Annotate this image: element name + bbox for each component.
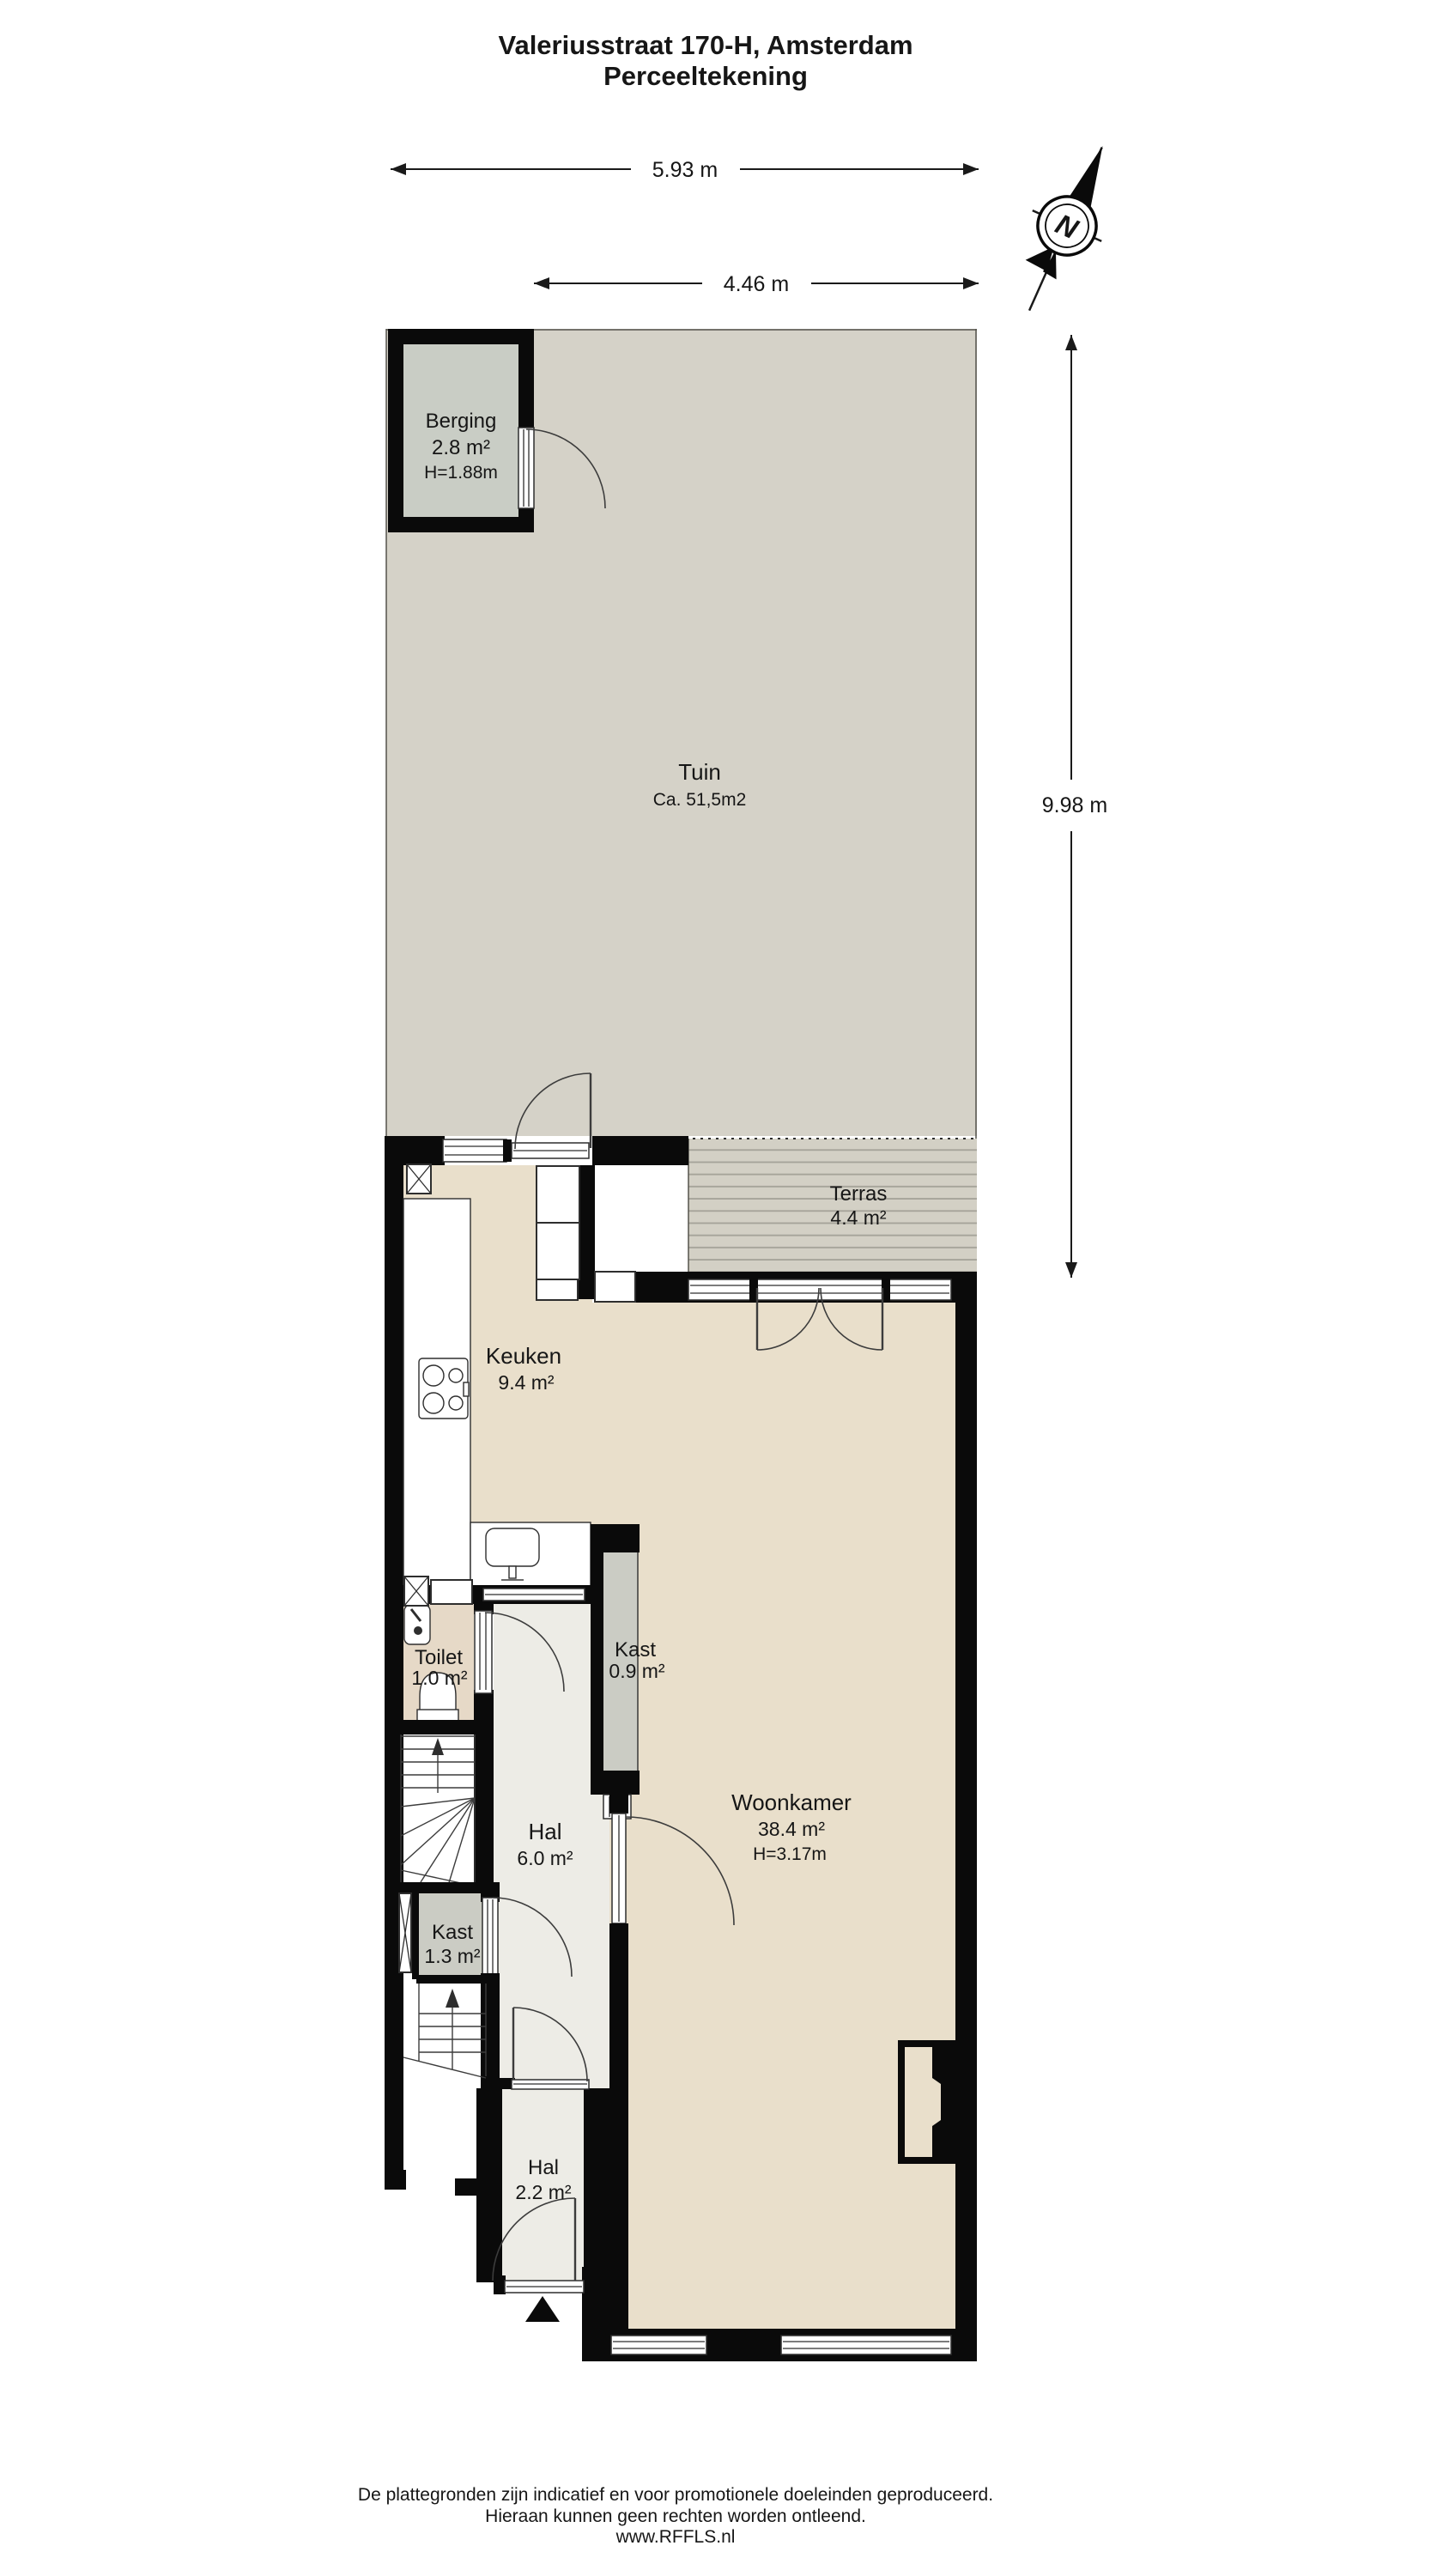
keuken-area: 9.4 m² <box>498 1371 555 1394</box>
terras-label: Terras <box>830 1182 888 1206</box>
page-title: Valeriusstraat 170-H, Amsterdam Perceelt… <box>498 30 912 91</box>
vent-shaft-icon <box>404 1577 428 1606</box>
berging-area: 2.8 m² <box>432 436 490 459</box>
title-line1: Valeriusstraat 170-H, Amsterdam <box>498 30 912 60</box>
terras-area: 4.4 m² <box>830 1206 887 1229</box>
compass-icon: N <box>995 131 1137 326</box>
keuken-label: Keuken <box>486 1343 561 1369</box>
dimension-label: 5.93 m <box>652 158 718 182</box>
toilet-area: 1.0 m² <box>411 1667 468 1689</box>
woonkamer-label: Woonkamer <box>731 1789 852 1815</box>
hal-label: Hal <box>528 1819 561 1844</box>
dimension-total-width: 5.93 m <box>391 158 979 182</box>
berging-height: H=1.88m <box>424 463 498 483</box>
dimension-garden-depth: 9.98 m <box>1042 335 1107 1278</box>
cabinet-icon <box>595 1272 635 1302</box>
hal-entree-label: Hal <box>528 2156 559 2179</box>
stairs-icon <box>401 1735 475 1886</box>
cabinet-column <box>537 1165 635 1302</box>
footer-line3: www.RFFLS.nl <box>615 2527 736 2547</box>
toilet-label: Toilet <box>415 1646 463 1669</box>
hal-area: 6.0 m² <box>517 1847 573 1869</box>
hal-entree-area: 2.2 m² <box>515 2181 572 2203</box>
footer-line2: Hieraan kunnen geen rechten worden ontle… <box>485 2506 866 2526</box>
floorplan-canvas: Valeriusstraat 170-H, Amsterdam Perceelt… <box>0 0 1449 2576</box>
vent-shaft-icon <box>399 1893 411 1972</box>
footer-line1: De plattegronden zijn indicatief en voor… <box>358 2485 993 2505</box>
kast-klein-area: 0.9 m² <box>609 1660 665 1682</box>
right-outer-wall <box>955 1272 977 2361</box>
kast-area: 1.3 m² <box>424 1945 481 1967</box>
cabinet-icon <box>537 1279 578 1300</box>
title-line2: Perceeltekening <box>603 61 808 91</box>
woonkamer-floor <box>592 1303 955 2331</box>
berging-label: Berging <box>426 410 497 433</box>
cabinet-icon <box>537 1166 579 1223</box>
bottom-wall <box>584 2329 973 2361</box>
entrance-arrow-icon <box>525 2296 560 2322</box>
cabinet-icon <box>537 1223 579 1279</box>
tuin-area: Ca. 51,5m2 <box>653 790 747 810</box>
woonkamer-area: 38.4 m² <box>758 1818 825 1840</box>
woonkamer-height: H=3.17m <box>753 1844 827 1864</box>
stairs-icon <box>403 1984 486 2078</box>
hand-sink-icon <box>404 1605 430 1644</box>
tuin-label: Tuin <box>678 759 721 785</box>
kast-label: Kast <box>432 1921 473 1944</box>
dimension-label: 4.46 m <box>724 272 789 296</box>
dimension-garden-width: 4.46 m <box>534 272 979 296</box>
kast-klein-label: Kast <box>615 1638 656 1662</box>
stairs-up-arrow-icon <box>432 1738 444 1755</box>
vent-shaft-icon <box>407 1164 431 1194</box>
dimension-label: 9.98 m <box>1042 793 1107 817</box>
stove-icon <box>419 1358 469 1419</box>
stairs-up-arrow-icon <box>446 1989 459 2008</box>
left-outer-wall <box>385 1136 403 2187</box>
footer-disclaimer: De plattegronden zijn indicatief en voor… <box>358 2485 993 2547</box>
chimney-icon <box>898 2040 955 2164</box>
